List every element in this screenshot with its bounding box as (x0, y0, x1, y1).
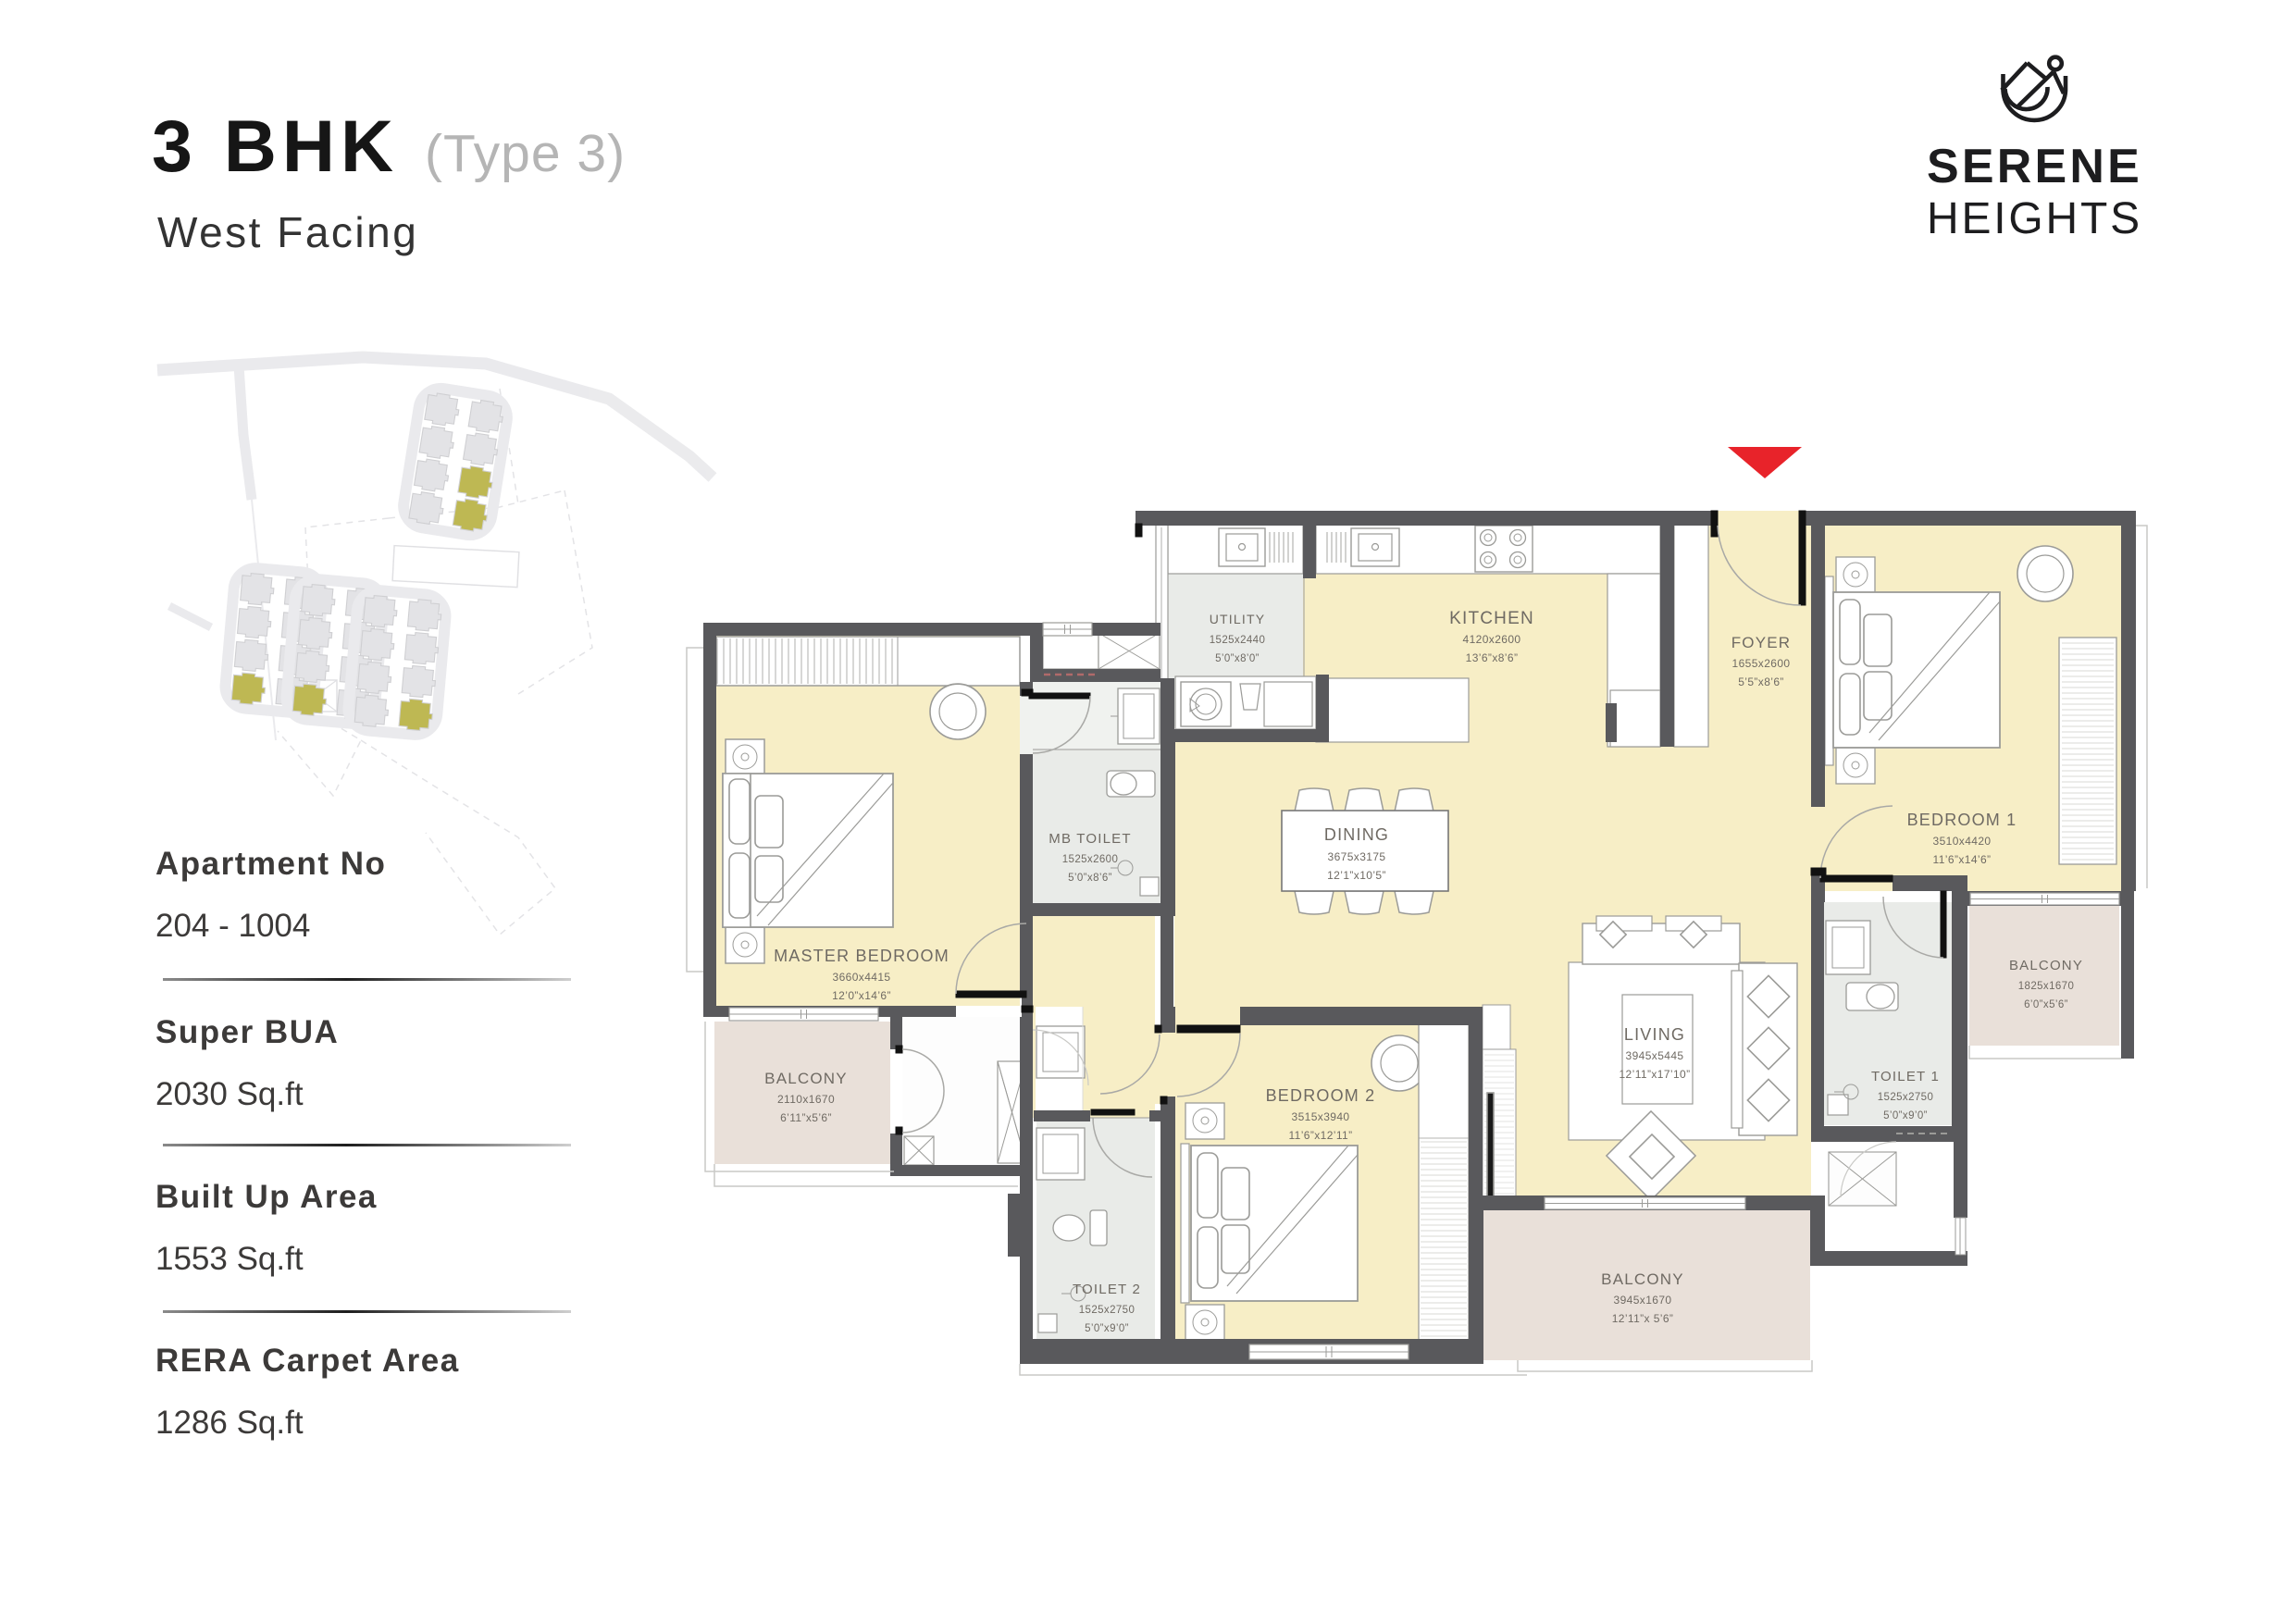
svg-text:6’11”x5’6”: 6’11”x5’6” (780, 1111, 832, 1124)
svg-text:LIVING: LIVING (1624, 1025, 1685, 1044)
svg-text:5’0”x9’0”: 5’0”x9’0” (1085, 1323, 1129, 1334)
svg-text:TOILET 2: TOILET 2 (1073, 1282, 1141, 1297)
svg-text:12’0”x14’6”: 12’0”x14’6” (832, 989, 891, 1002)
svg-text:BALCONY: BALCONY (1601, 1270, 1684, 1288)
svg-text:5’0”x8’6”: 5’0”x8’6” (1068, 873, 1112, 884)
svg-text:5’0”x8’0”: 5’0”x8’0” (1215, 653, 1260, 664)
svg-text:3660x4415: 3660x4415 (833, 971, 891, 984)
svg-text:13’6”x8’6”: 13’6”x8’6” (1466, 651, 1519, 664)
svg-text:6’0”x5’6”: 6’0”x5’6” (2024, 999, 2068, 1010)
svg-text:DINING: DINING (1324, 825, 1389, 844)
svg-text:FOYER: FOYER (1731, 634, 1792, 651)
svg-text:BALCONY: BALCONY (2009, 958, 2083, 973)
svg-text:12’11”x 5’6”: 12’11”x 5’6” (1612, 1312, 1674, 1325)
svg-text:5’5”x8’6”: 5’5”x8’6” (1738, 675, 1784, 688)
svg-text:BEDROOM 1: BEDROOM 1 (1907, 811, 2017, 829)
svg-text:BALCONY: BALCONY (764, 1070, 848, 1087)
svg-text:5’0”x9’0”: 5’0”x9’0” (1883, 1110, 1928, 1121)
svg-text:TOILET 1: TOILET 1 (1871, 1069, 1940, 1084)
svg-text:1655x2600: 1655x2600 (1732, 657, 1791, 670)
svg-text:KITCHEN: KITCHEN (1449, 609, 1534, 628)
svg-text:12’11”x17’10”: 12’11”x17’10” (1619, 1068, 1690, 1081)
svg-text:1525x2750: 1525x2750 (1079, 1305, 1136, 1316)
svg-text:3945x1670: 3945x1670 (1614, 1294, 1672, 1307)
svg-text:1525x2440: 1525x2440 (1210, 635, 1266, 646)
svg-text:3510x4420: 3510x4420 (1933, 835, 1992, 848)
svg-text:1825x1670: 1825x1670 (2018, 981, 2075, 992)
svg-text:11’6”x14’6”: 11’6”x14’6” (1933, 853, 1992, 866)
svg-text:MB TOILET: MB TOILET (1049, 831, 1131, 847)
svg-text:12’1”x10’5”: 12’1”x10’5” (1327, 869, 1386, 882)
svg-text:4120x2600: 4120x2600 (1463, 633, 1521, 646)
svg-text:11’6”x12’11”: 11’6”x12’11” (1288, 1129, 1352, 1142)
svg-text:1525x2600: 1525x2600 (1062, 854, 1119, 865)
svg-text:UTILITY: UTILITY (1210, 612, 1266, 626)
svg-text:BEDROOM 2: BEDROOM 2 (1266, 1086, 1376, 1105)
svg-text:1525x2750: 1525x2750 (1878, 1092, 1934, 1103)
svg-text:MASTER BEDROOM: MASTER BEDROOM (774, 947, 949, 965)
svg-text:3515x3940: 3515x3940 (1292, 1110, 1350, 1123)
svg-text:3945x5445: 3945x5445 (1626, 1049, 1684, 1062)
svg-text:2110x1670: 2110x1670 (777, 1093, 835, 1106)
svg-text:3675x3175: 3675x3175 (1328, 850, 1386, 863)
